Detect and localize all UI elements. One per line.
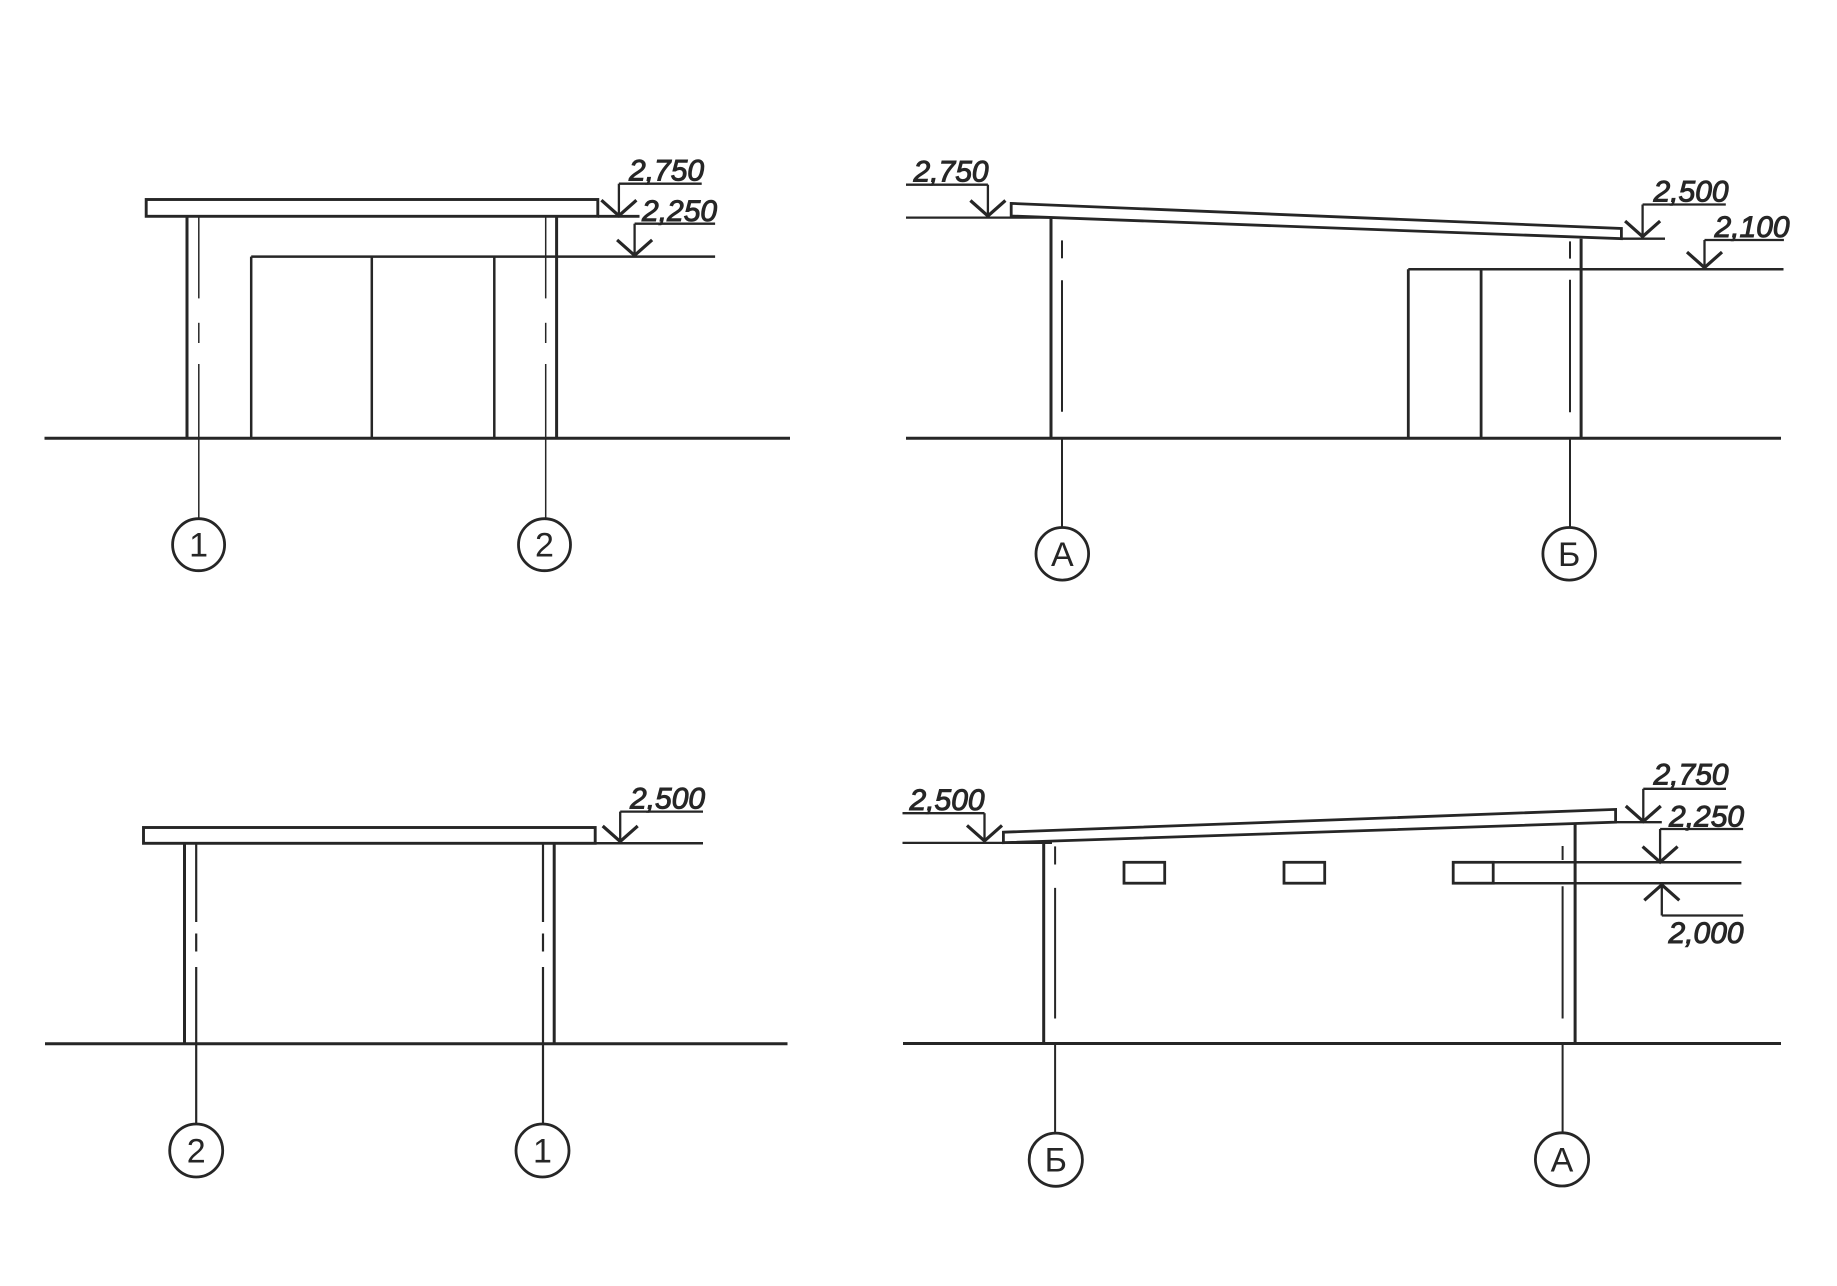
svg-text:2,100: 2,100 bbox=[1714, 211, 1790, 244]
svg-text:2,500: 2,500 bbox=[909, 784, 985, 817]
svg-text:А: А bbox=[1051, 536, 1074, 574]
svg-text:2,750: 2,750 bbox=[1653, 759, 1729, 792]
svg-text:2,250: 2,250 bbox=[641, 195, 717, 228]
svg-text:2,750: 2,750 bbox=[628, 155, 704, 188]
svg-text:2,500: 2,500 bbox=[1653, 176, 1729, 209]
svg-text:Б: Б bbox=[1558, 536, 1580, 574]
svg-text:А: А bbox=[1551, 1141, 1574, 1179]
svg-text:1: 1 bbox=[189, 527, 208, 565]
svg-text:2,000: 2,000 bbox=[1668, 917, 1744, 950]
svg-text:Б: Б bbox=[1045, 1142, 1067, 1180]
svg-text:1: 1 bbox=[533, 1133, 552, 1171]
svg-text:2: 2 bbox=[535, 527, 554, 565]
svg-text:2,750: 2,750 bbox=[913, 156, 989, 189]
svg-text:2,250: 2,250 bbox=[1668, 801, 1744, 834]
svg-text:2,500: 2,500 bbox=[629, 783, 705, 816]
svg-text:2: 2 bbox=[187, 1133, 206, 1171]
